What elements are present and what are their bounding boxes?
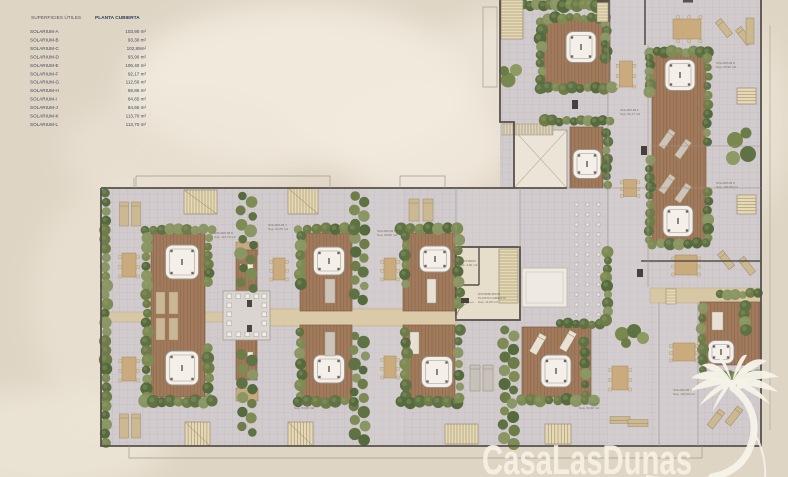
- svg-text:CasaLasDunas: CasaLasDunas: [482, 436, 692, 477]
- svg-text:113,70 m²: 113,70 m²: [126, 122, 147, 127]
- svg-text:SOLARIUM-K: SOLARIUM-K: [30, 114, 60, 119]
- svg-text:SOLARIUM-H: SOLARIUM-H: [30, 88, 59, 93]
- svg-text:SOLARIUM-B: SOLARIUM-B: [30, 38, 59, 43]
- svg-text:SOLARIUM-F: SOLARIUM-F: [30, 71, 59, 76]
- svg-text:69,85 m²: 69,85 m²: [128, 88, 147, 93]
- svg-text:Sup. 84,65 m2: Sup. 84,65 m2: [294, 406, 314, 410]
- svg-text:SOLARIUM-G: SOLARIUM-G: [30, 80, 60, 85]
- svg-text:Sup. 4,30 m2: Sup. 4,30 m2: [459, 263, 478, 267]
- svg-text:Sup. 84,65 m2: Sup. 84,65 m2: [268, 227, 288, 231]
- svg-text:84,65 m²: 84,65 m²: [128, 97, 147, 102]
- svg-text:SOLARIUM-A: SOLARIUM-A: [30, 29, 60, 34]
- svg-text:113,70 m²: 113,70 m²: [126, 114, 147, 119]
- svg-text:SOLARIUM-C: SOLARIUM-C: [30, 46, 60, 51]
- svg-text:103,90 m²: 103,90 m²: [125, 29, 146, 34]
- svg-text:Sup. 93,30 m2: Sup. 93,30 m2: [579, 406, 599, 410]
- svg-text:SOLARIUM-D: SOLARIUM-D: [30, 54, 60, 59]
- svg-text:Sup. 102,89 m2: Sup. 102,89 m2: [716, 185, 738, 189]
- svg-text:84,65 m²: 84,65 m²: [128, 105, 147, 110]
- svg-text:Sup. 103,90 m2: Sup. 103,90 m2: [673, 392, 695, 396]
- svg-text:SOLARIUM-J: SOLARIUM-J: [30, 105, 58, 110]
- svg-text:PLANTA CUBIERTA: PLANTA CUBIERTA: [95, 15, 140, 21]
- svg-text:SUPERFICIES ÚTILES: SUPERFICIES ÚTILES: [31, 14, 81, 21]
- svg-text:Sup. 92,17 m2: Sup. 92,17 m2: [620, 112, 640, 116]
- svg-text:Sup. 93,90 m2: Sup. 93,90 m2: [716, 65, 736, 69]
- svg-text:102,89m²: 102,89m²: [127, 46, 147, 51]
- svg-text:93,30 m²: 93,30 m²: [128, 38, 147, 43]
- svg-text:93,90 m²: 93,90 m²: [128, 54, 147, 59]
- svg-text:106,40 m²: 106,40 m²: [125, 63, 146, 68]
- svg-text:SOLARIUM-I: SOLARIUM-I: [30, 97, 57, 102]
- svg-text:Sup. 113,70 m2: Sup. 113,70 m2: [214, 235, 236, 239]
- svg-text:112,56 m²: 112,56 m²: [126, 80, 147, 85]
- svg-text:SOLARIUM-L: SOLARIUM-L: [30, 122, 59, 127]
- svg-text:Sup. 69,85 m2: Sup. 69,85 m2: [377, 233, 397, 237]
- svg-text:SOLARIUM-E: SOLARIUM-E: [30, 63, 59, 68]
- svg-text:92,17 m²: 92,17 m²: [128, 71, 147, 76]
- svg-text:Sup. 11,80 m2: Sup. 11,80 m2: [478, 300, 498, 304]
